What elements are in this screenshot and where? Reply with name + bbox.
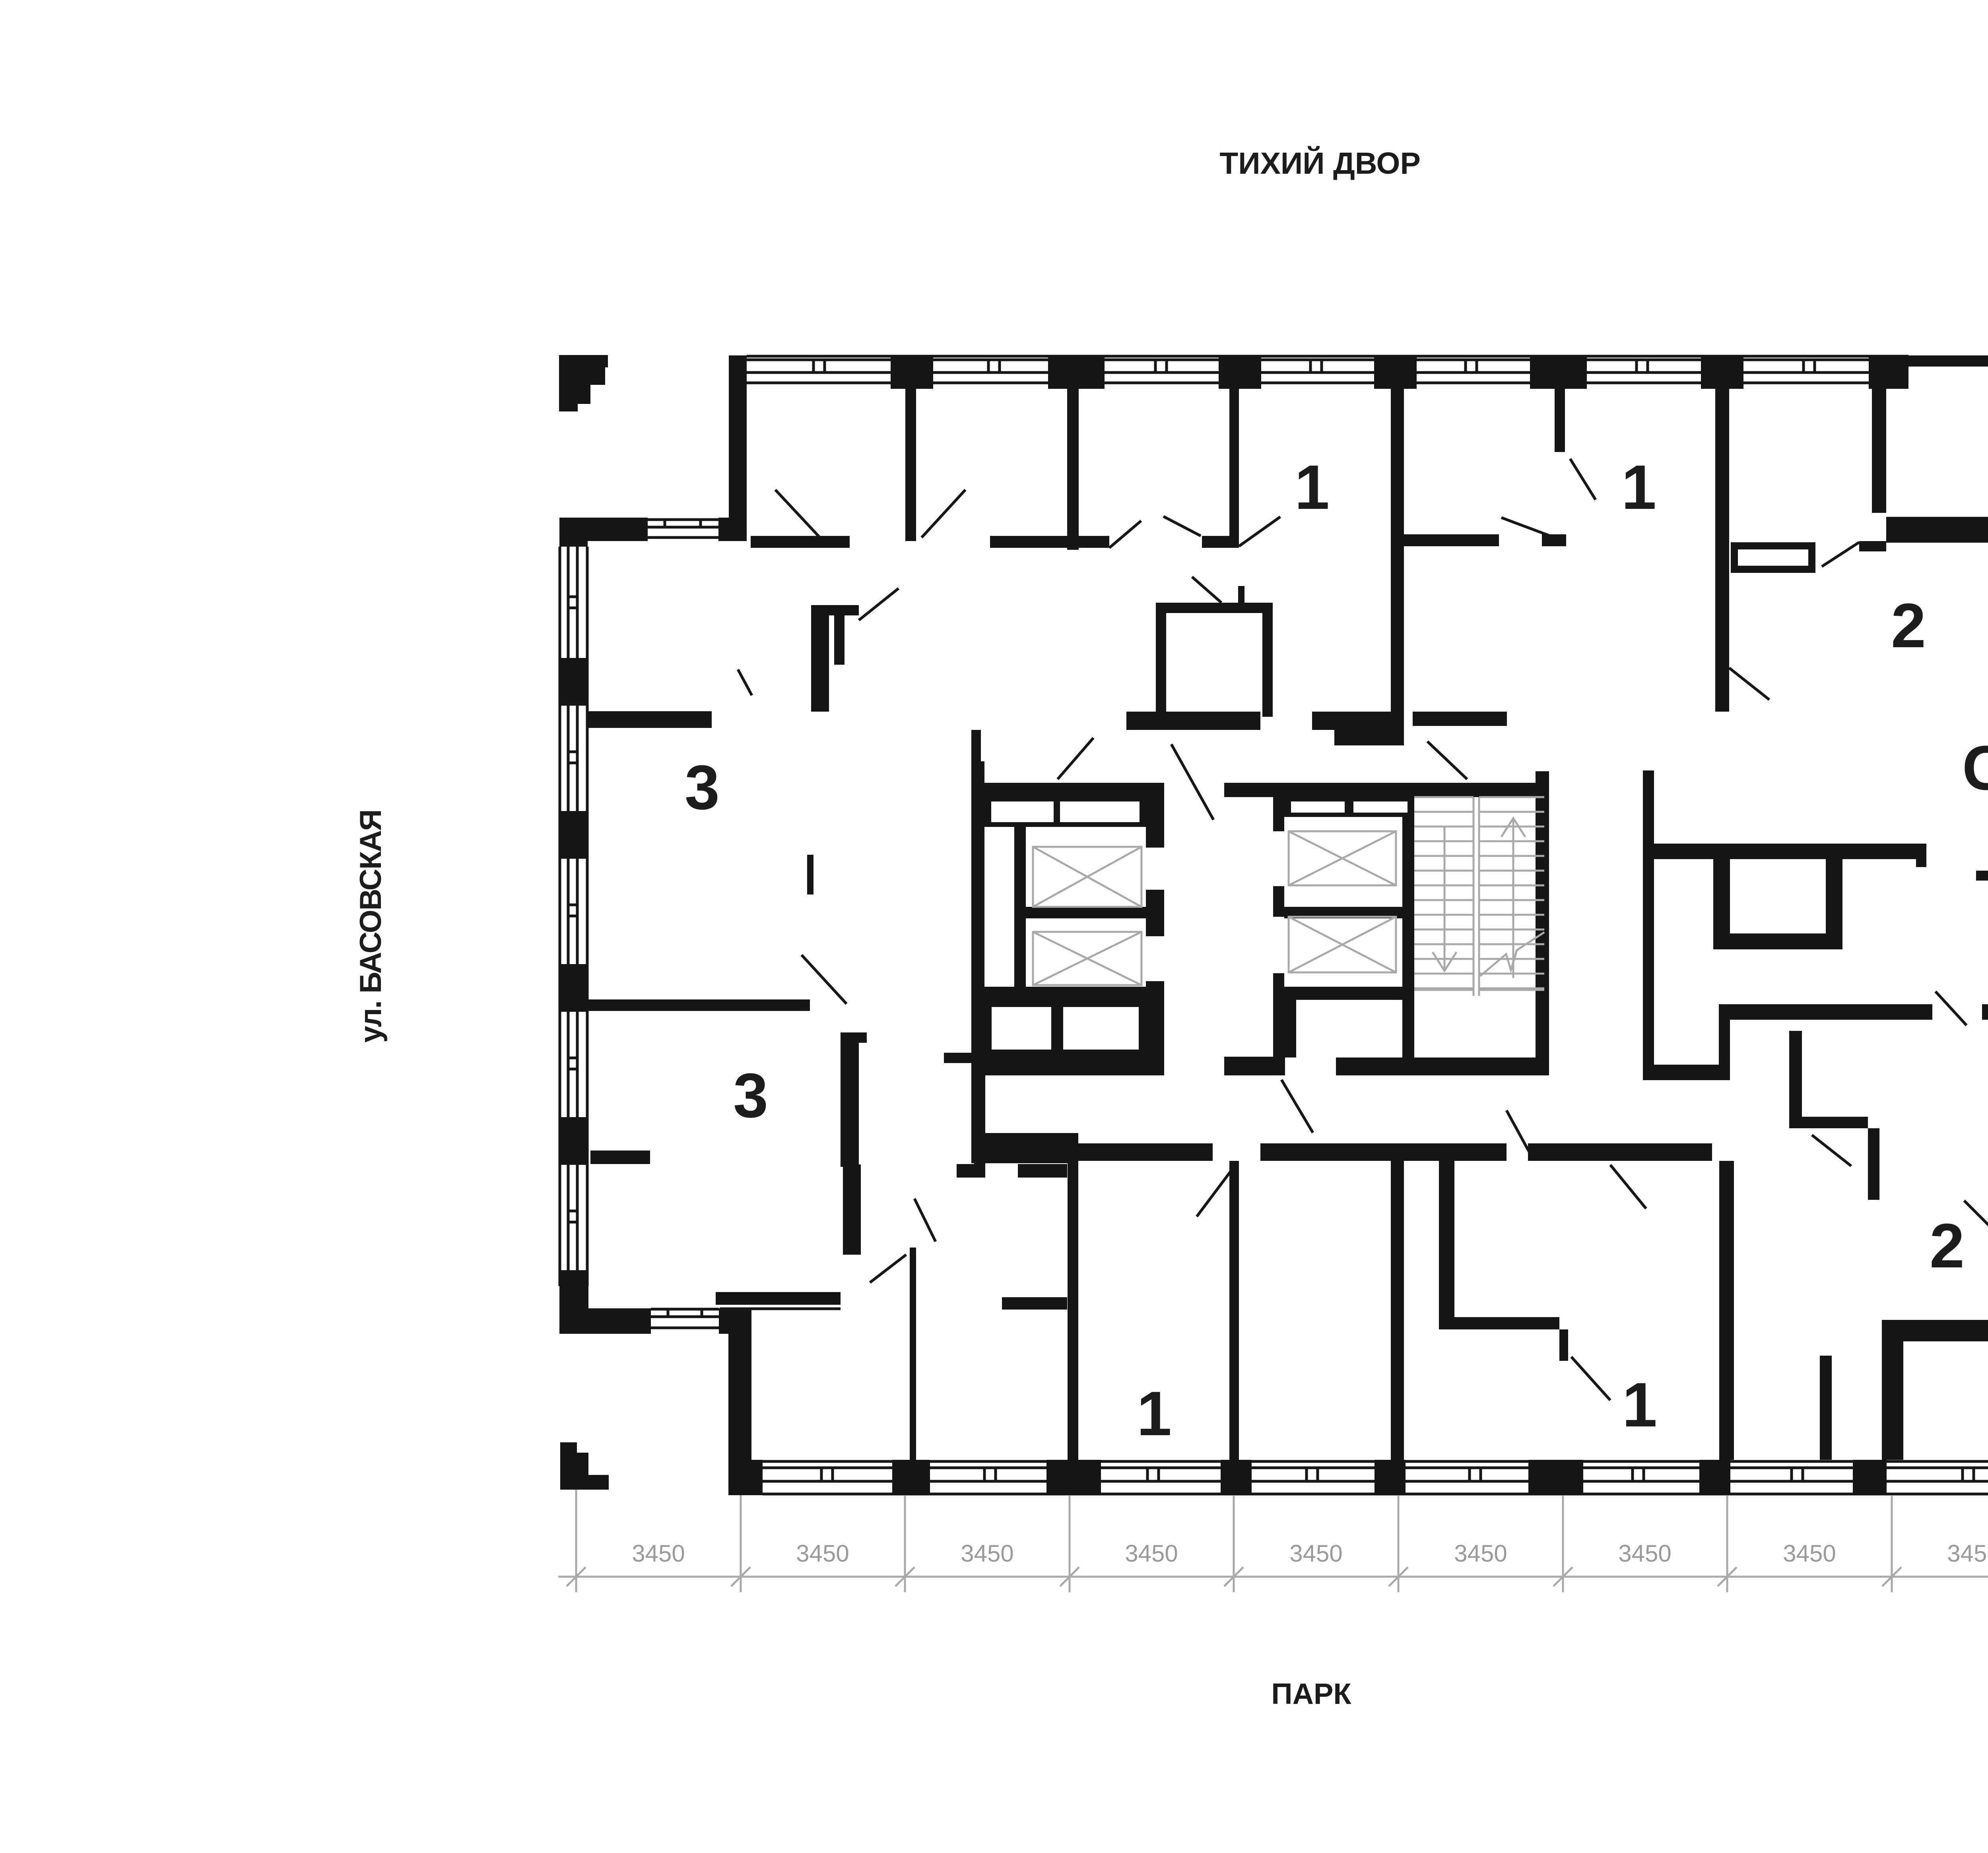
svg-text:1: 1 [1621,452,1656,522]
svg-text:ПАРК: ПАРК [1271,1677,1351,1710]
svg-text:3450: 3450 [796,1540,849,1567]
svg-text:3450: 3450 [961,1540,1013,1567]
svg-text:С: С [1962,733,1988,803]
svg-text:1: 1 [1295,452,1330,522]
svg-text:ТИХИЙ ДВОР: ТИХИЙ ДВОР [1219,146,1421,180]
svg-text:1: 1 [1622,1370,1657,1440]
svg-text:3450: 3450 [1125,1540,1178,1567]
svg-text:3450: 3450 [1783,1540,1836,1567]
svg-text:3450: 3450 [1454,1540,1507,1567]
svg-text:3: 3 [733,1061,768,1131]
svg-text:1: 1 [1137,1379,1172,1449]
svg-text:2: 2 [1930,1211,1965,1281]
svg-text:3450: 3450 [632,1540,685,1567]
svg-text:3450: 3450 [1289,1540,1342,1567]
svg-text:3450: 3450 [1947,1540,1988,1567]
svg-text:3450: 3450 [1618,1540,1671,1567]
svg-text:2: 2 [1891,591,1926,661]
svg-text:ул. БАСОВСКАЯ: ул. БАСОВСКАЯ [354,810,388,1042]
svg-text:3: 3 [685,753,720,823]
